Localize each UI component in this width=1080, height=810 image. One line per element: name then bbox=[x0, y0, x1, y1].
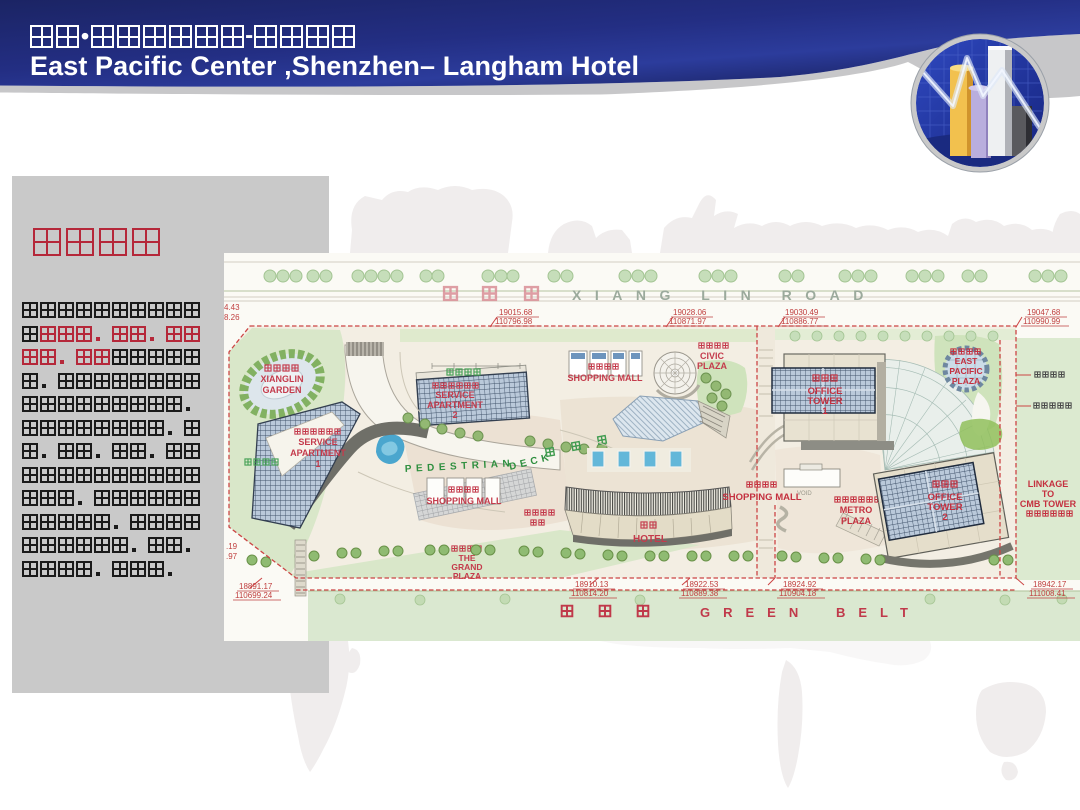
svg-text:110886.77: 110886.77 bbox=[781, 317, 819, 326]
svg-text:BELT: BELT bbox=[836, 605, 921, 620]
svg-text:19030.49: 19030.49 bbox=[785, 308, 819, 317]
svg-text:18910.13: 18910.13 bbox=[575, 580, 609, 589]
svg-text:SERVICE: SERVICE bbox=[435, 390, 474, 400]
svg-text:PLAZA: PLAZA bbox=[697, 361, 727, 371]
svg-text:8.26: 8.26 bbox=[224, 313, 240, 322]
svg-text:METRO: METRO bbox=[840, 505, 873, 515]
svg-text:GREEN: GREEN bbox=[700, 605, 811, 620]
svg-text:111008.41: 111008.41 bbox=[1029, 589, 1066, 598]
svg-text:1: 1 bbox=[822, 406, 828, 417]
svg-text:110904.18: 110904.18 bbox=[779, 589, 817, 598]
svg-text:PLAZA: PLAZA bbox=[952, 376, 980, 386]
svg-text:SHOPPING MALL: SHOPPING MALL bbox=[567, 373, 643, 383]
svg-text:110990.99: 110990.99 bbox=[1023, 317, 1061, 326]
svg-text:.97: .97 bbox=[226, 552, 238, 561]
svg-text:PLAZA: PLAZA bbox=[453, 571, 481, 581]
svg-text:CIVIC: CIVIC bbox=[700, 351, 725, 361]
svg-text:LINKAGE: LINKAGE bbox=[1028, 479, 1069, 489]
svg-text:2: 2 bbox=[452, 410, 457, 420]
svg-text:18924.92: 18924.92 bbox=[783, 580, 817, 589]
svg-text:HOTEL: HOTEL bbox=[633, 534, 667, 545]
svg-text:PLAZA: PLAZA bbox=[841, 516, 871, 526]
svg-text:110871.97: 110871.97 bbox=[669, 317, 707, 326]
svg-text:19047.68: 19047.68 bbox=[1027, 308, 1061, 317]
svg-text:TO: TO bbox=[1042, 489, 1054, 499]
svg-text:XIANG LIN ROAD: XIANG LIN ROAD bbox=[572, 287, 877, 303]
svg-text:GARDEN: GARDEN bbox=[262, 385, 301, 395]
svg-text:SHOPPING MALL: SHOPPING MALL bbox=[426, 496, 502, 506]
svg-text:EAST: EAST bbox=[955, 356, 978, 366]
svg-text:APARTMENT: APARTMENT bbox=[290, 448, 346, 458]
svg-text:18891.17: 18891.17 bbox=[239, 582, 273, 591]
svg-text:PACIFIC: PACIFIC bbox=[949, 366, 982, 376]
svg-text:110814.20: 110814.20 bbox=[571, 589, 609, 598]
svg-text:110699.24: 110699.24 bbox=[235, 591, 273, 600]
svg-text:XIANGLIN: XIANGLIN bbox=[260, 374, 303, 384]
svg-text:CMB TOWER: CMB TOWER bbox=[1020, 499, 1077, 509]
svg-text:110889.38: 110889.38 bbox=[681, 589, 719, 598]
svg-text:SERVICE: SERVICE bbox=[298, 437, 337, 447]
svg-text:19028.06: 19028.06 bbox=[673, 308, 707, 317]
svg-text:18922.53: 18922.53 bbox=[685, 580, 719, 589]
svg-text:19015.68: 19015.68 bbox=[499, 308, 533, 317]
svg-text:APARTMENT: APARTMENT bbox=[427, 400, 483, 410]
svg-text:2: 2 bbox=[942, 512, 947, 523]
svg-text:SHOPPING MALL: SHOPPING MALL bbox=[722, 492, 801, 503]
svg-text:1: 1 bbox=[315, 459, 320, 469]
svg-text:18942.17: 18942.17 bbox=[1033, 580, 1067, 589]
svg-text:110796.98: 110796.98 bbox=[495, 317, 533, 326]
svg-text:.19: .19 bbox=[226, 542, 238, 551]
svg-text:4.43: 4.43 bbox=[224, 303, 240, 312]
